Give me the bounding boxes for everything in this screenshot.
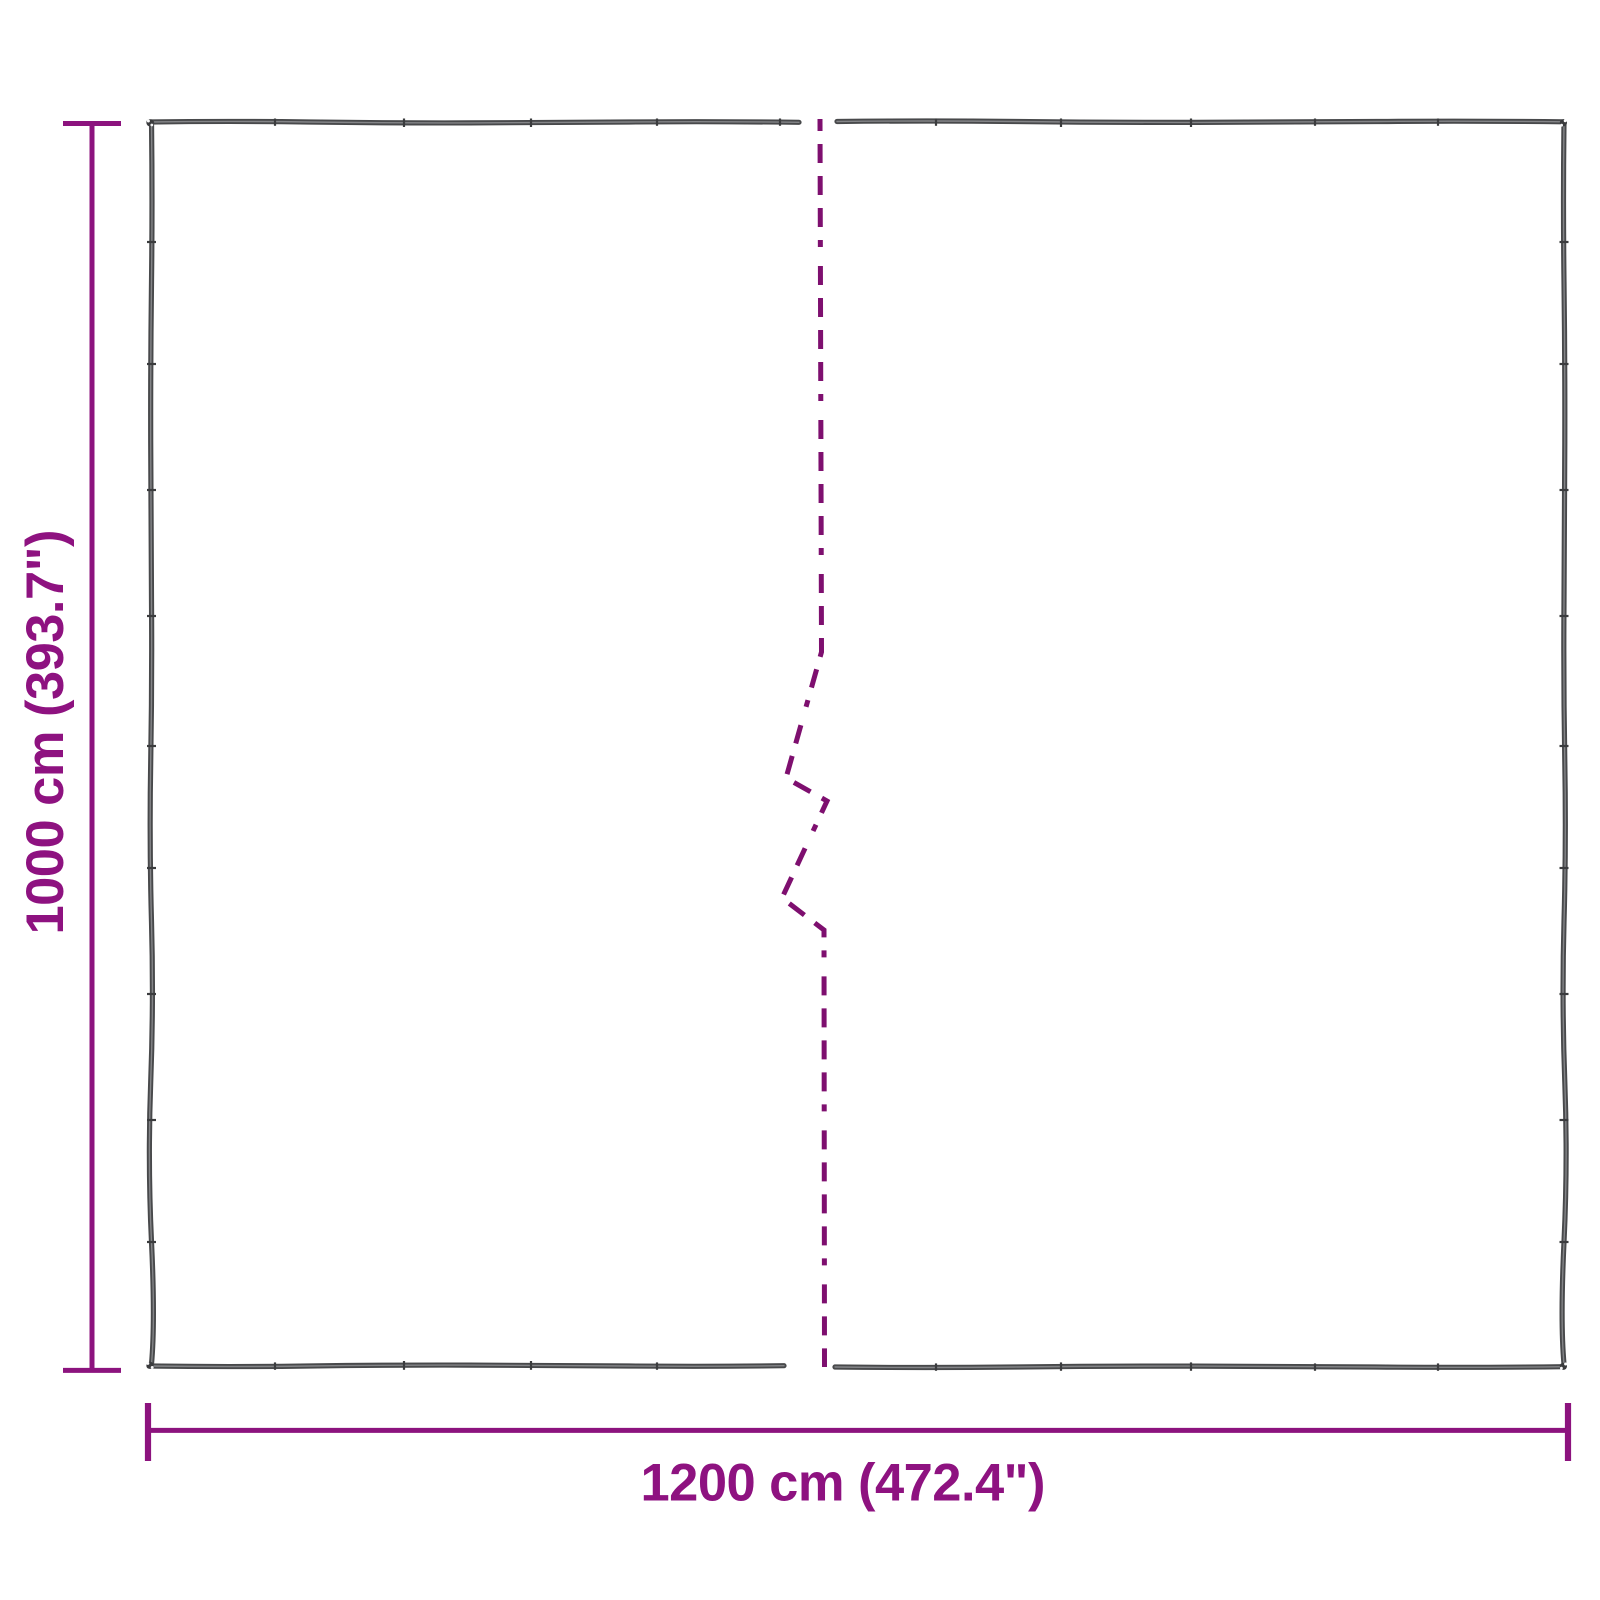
svg-text:1000 cm (393.7"): 1000 cm (393.7"): [16, 530, 75, 935]
svg-text:1200 cm (472.4"): 1200 cm (472.4"): [641, 1454, 1046, 1513]
